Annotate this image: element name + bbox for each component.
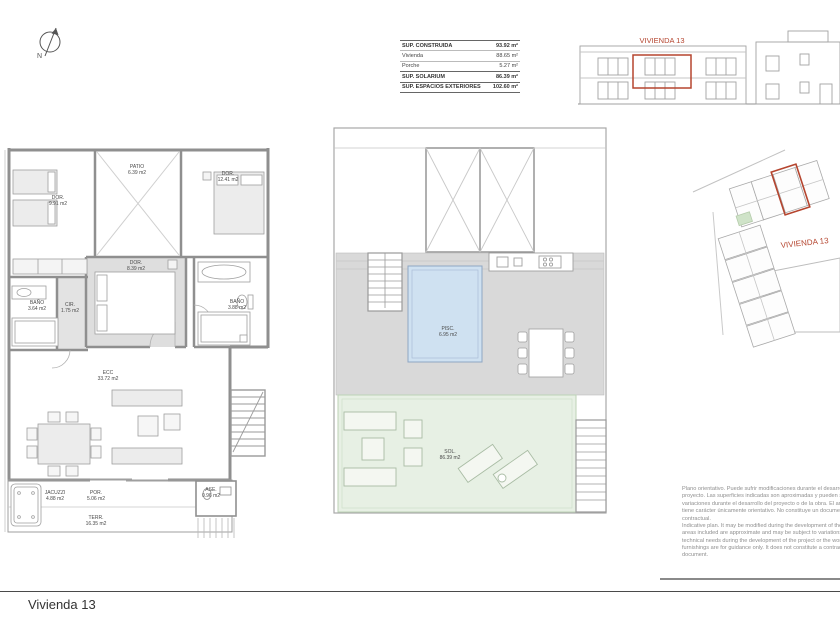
pool: [408, 266, 482, 362]
disclaimer-es: Plano orientativo. Puede sufrir modifica…: [682, 486, 840, 523]
area-label: Vivienda: [402, 53, 423, 59]
area-label: SUP. CONSTRUIDA: [402, 43, 452, 49]
area-value: 102.60 m²: [493, 84, 518, 90]
ground-floor-plan: [5, 148, 269, 538]
room-label-solarium: SOL.86.39 m2: [440, 449, 461, 462]
site-plan-key: VIVIENDA 13: [693, 150, 840, 347]
room-label-living: ECC33.72 m2: [98, 370, 119, 383]
table-row: SUP. ESPACIOS EXTERIORES 102.60 m²: [400, 82, 520, 93]
areas-table: SUP. CONSTRUIDA 93.92 m² Vivienda 88.65 …: [400, 40, 520, 93]
area-label: SUP. ESPACIOS EXTERIORES: [402, 84, 481, 90]
room-label-pool: PISC.6.95 m2: [439, 326, 457, 339]
room-label-bath2: BAÑO3.88 m2: [228, 299, 246, 312]
site-plan-buildings: [704, 158, 840, 348]
room-label-jacuzzi: JACUZZI4.88 m2: [45, 490, 66, 503]
room-label-terrace: TERR.16.35 m2: [86, 515, 107, 528]
area-value: 93.92 m²: [496, 43, 518, 49]
room-label-bath1: BAÑO3.64 m2: [28, 300, 46, 313]
exterior-steps: [198, 518, 234, 538]
room-label-bedroom1: DOR.9.91 m2: [49, 195, 67, 208]
north-label: N: [37, 53, 42, 60]
disclaimer-block: Plano orientativo. Puede sufrir modifica…: [682, 486, 840, 560]
sheet-bottom-rule: [0, 591, 840, 592]
table-row: Porche 5.27 m²: [400, 61, 520, 71]
plan-sheet: N: [0, 0, 840, 630]
site-plan-unit-label: VIVIENDA 13: [780, 236, 829, 250]
area-label: SUP. SOLARIUM: [402, 74, 445, 80]
area-value: 5.27 m²: [499, 63, 518, 69]
sheet-title: Vivienda 13: [28, 597, 96, 612]
room-label-patio: PATIO6.39 m2: [128, 164, 146, 177]
room-label-wc: ASE.0.96 m2: [202, 487, 220, 500]
room-label-corridor: CIR.1.75 m2: [61, 302, 79, 315]
elevation-unit-label: VIVIENDA 13: [639, 36, 684, 45]
elevation-key: VIVIENDA 13: [578, 31, 840, 104]
jacuzzi-fixture: [11, 484, 41, 526]
room-label-porch: POR.5.06 m2: [87, 490, 105, 503]
ground-stairs: [231, 390, 265, 456]
roof-stairs-right: [576, 420, 606, 512]
area-value: 88.65 m²: [496, 53, 518, 59]
area-label: Porche: [402, 63, 419, 69]
bathroom1-fixtures: [12, 286, 58, 346]
bedroom1-furniture: [13, 170, 87, 274]
roof-plan: [334, 128, 606, 513]
table-row: Vivienda 88.65 m²: [400, 50, 520, 60]
table-row: SUP. CONSTRUIDA 93.92 m²: [400, 40, 520, 50]
elevation-right-block: [756, 31, 840, 104]
roof-dining-set: [518, 329, 574, 377]
living-furniture: [27, 390, 182, 476]
room-label-bedroom3: DOR.8.39 m2: [127, 260, 145, 273]
area-value: 86.39 m²: [496, 74, 518, 80]
room-label-bedroom2: DOR.12.41 m2: [218, 171, 239, 184]
roof-stairs-left: [368, 253, 402, 311]
disclaimer-en: Indicative plan. It may be modified duri…: [682, 523, 840, 560]
roof-kitchen-counter: [489, 253, 573, 271]
elevation-unit-highlight: [633, 55, 691, 88]
disclaimer-rule: [660, 578, 840, 580]
north-arrow-icon: N: [37, 28, 60, 60]
table-row: SUP. SOLARIUM 86.39 m²: [400, 71, 520, 81]
elevation-windows: [598, 58, 736, 99]
